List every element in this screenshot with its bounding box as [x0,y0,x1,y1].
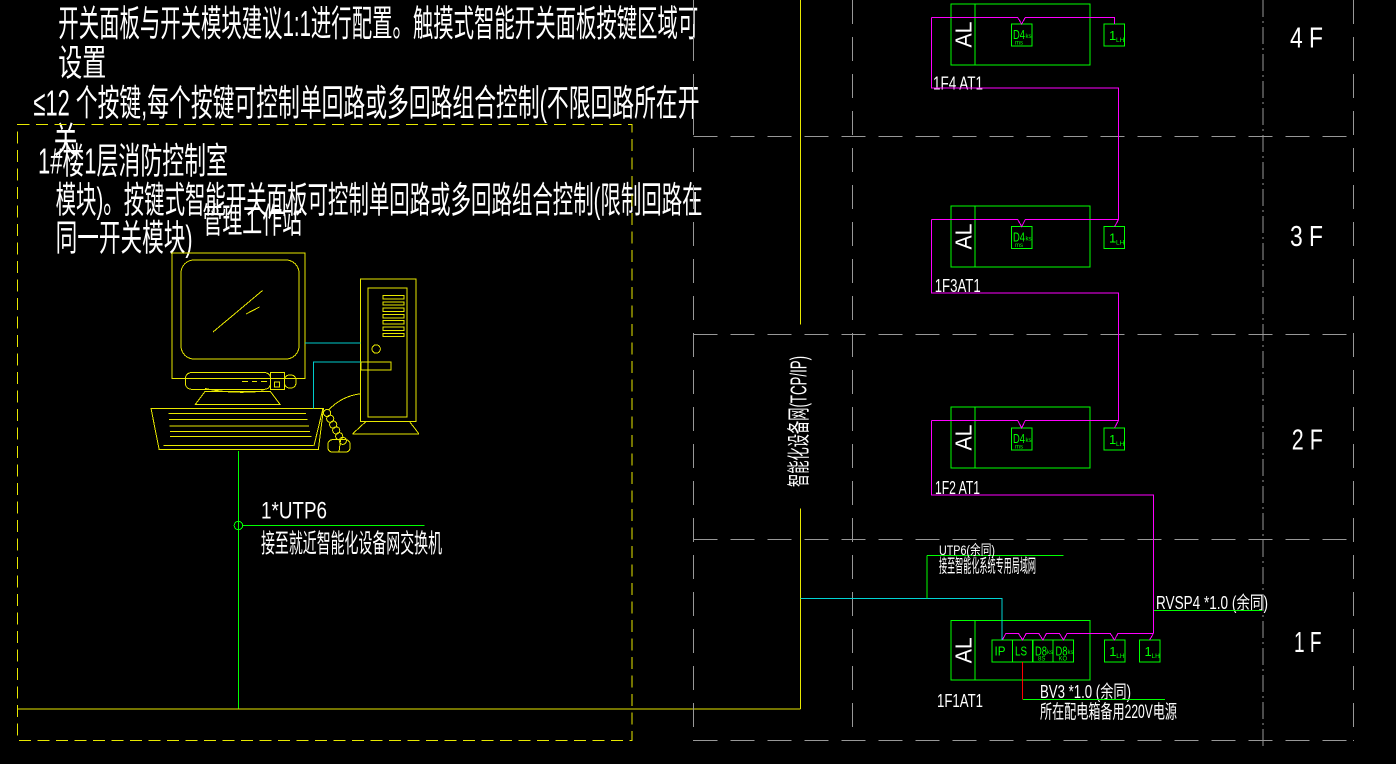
svg-text:LH: LH [1116,653,1125,660]
svg-text:LH: LH [1116,441,1125,448]
svg-text:智能化设备网(TCP/IP): 智能化设备网(TCP/IP) [786,356,812,487]
svg-text:开关面板与开关模块建议1:1进行配置。触摸式智能开关面板按键: 开关面板与开关模块建议1:1进行配置。触摸式智能开关面板按键区域可 [58,3,698,44]
svg-text:AL: AL [951,21,977,47]
svg-text:1*UTP6: 1*UTP6 [261,498,327,525]
svg-text:IP: IP [995,644,1006,659]
svg-text:3 F: 3 F [1290,221,1323,253]
svg-text:1 F: 1 F [1294,627,1322,659]
svg-text:接至智能化系统专用局域网: 接至智能化系统专用局域网 [939,556,1036,577]
svg-text:≤12 个按键,每个按键可控制单回路或多回路组合控制(不限回: ≤12 个按键,每个按键可控制单回路或多回路组合控制(不限回路所在开 [34,83,700,124]
svg-text:设置: 设置 [58,43,106,84]
svg-text:LH: LH [1116,240,1125,247]
svg-text:ks: ks [1026,438,1032,444]
svg-text:所在配电箱备用220V电源: 所在配电箱备用220V电源 [1040,701,1177,723]
svg-text:ms: ms [1015,445,1023,451]
svg-text:ms: ms [1015,41,1023,47]
svg-text:1F1AT1: 1F1AT1 [937,691,983,711]
svg-text:ks: ks [1026,34,1032,40]
svg-text:接至就近智能化设备网交换机: 接至就近智能化设备网交换机 [261,529,442,558]
svg-text:AL: AL [951,637,977,663]
svg-text:LH: LH [1152,653,1161,660]
svg-text:ks: ks [1047,650,1053,656]
svg-text:同一开关模块): 同一开关模块) [56,217,193,258]
svg-text:ks: ks [1068,650,1074,656]
svg-text:2 F: 2 F [1292,425,1323,457]
svg-text:AL: AL [951,224,977,250]
svg-text:LS: LS [1015,644,1027,659]
svg-text:1F4 AT1: 1F4 AT1 [933,74,983,94]
svg-text:1#楼1层消防控制室: 1#楼1层消防控制室 [38,140,228,181]
svg-text:LH: LH [1116,37,1125,44]
svg-text:管理工作站: 管理工作站 [203,202,303,241]
svg-text:8S: 8S [1038,657,1045,663]
svg-text:ms: ms [1015,243,1023,249]
svg-text:模块)。按键式智能开关面板可控制单回路或多回路组合控制(限制: 模块)。按键式智能开关面板可控制单回路或多回路组合控制(限制回路在 [56,179,703,220]
svg-text:AL: AL [951,425,977,451]
svg-text:ks: ks [1026,237,1032,243]
svg-text:4 F: 4 F [1290,22,1323,54]
svg-text:KO: KO [1059,657,1068,663]
